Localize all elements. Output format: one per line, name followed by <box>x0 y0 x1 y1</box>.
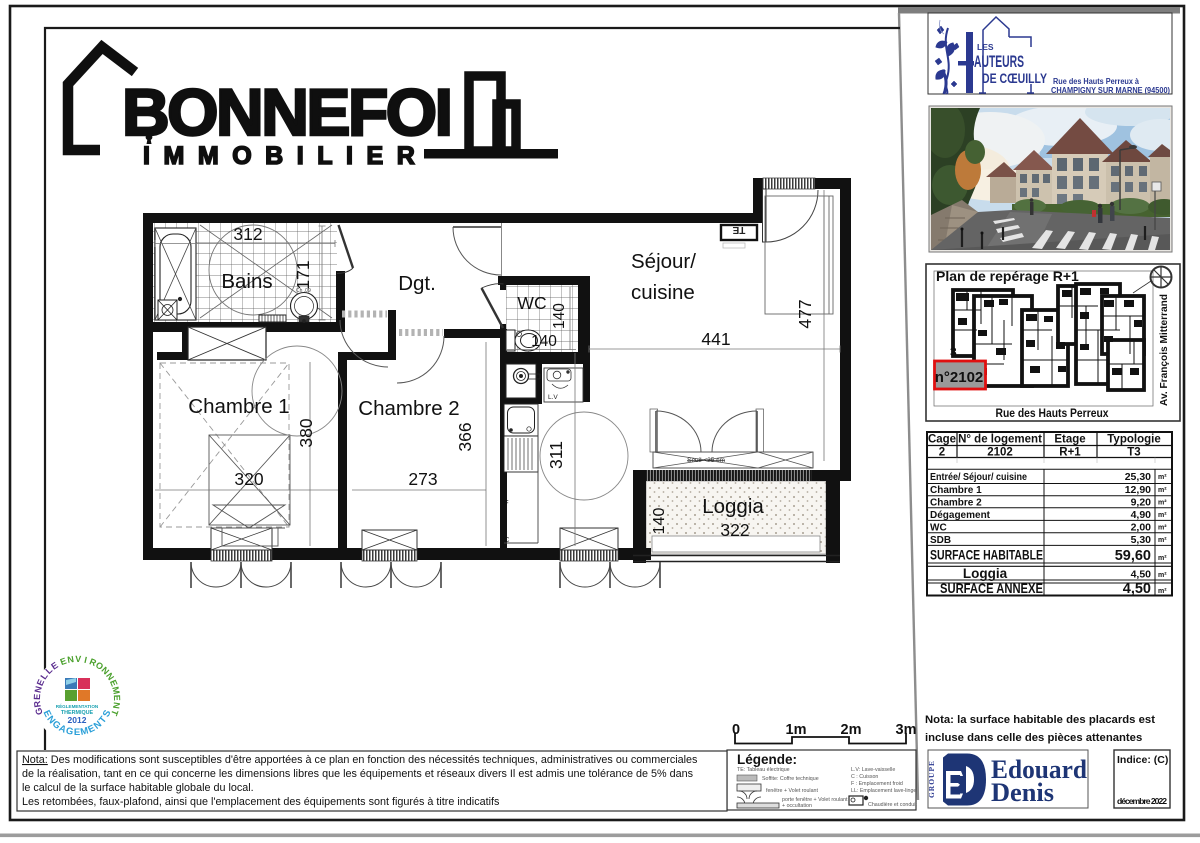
svg-text:12,90: 12,90 <box>1125 484 1151 496</box>
svg-text:4,50: 4,50 <box>1131 569 1152 581</box>
svg-text:Les retombées, faux-plafond, a: Les retombées, faux-plafond, ainsi que l… <box>22 796 500 808</box>
svg-text:SURFACE HABITABLE: SURFACE HABITABLE <box>930 548 1043 563</box>
svg-text:Entrée/ Séjour/ cuisine: Entrée/ Séjour/ cuisine <box>930 472 1027 483</box>
svg-text:9,20: 9,20 <box>1131 497 1152 509</box>
svg-text:Chambre 1: Chambre 1 <box>930 485 982 496</box>
svg-text:m²: m² <box>1158 588 1167 595</box>
svg-text:4,90: 4,90 <box>1131 509 1152 521</box>
svg-text:m²: m² <box>1158 512 1167 519</box>
svg-text:4,50: 4,50 <box>1123 581 1151 597</box>
svg-text:Cage: Cage <box>928 434 956 446</box>
svg-text:Typologie: Typologie <box>1107 434 1160 446</box>
svg-text:Nota: Des modifications sont s: Nota: Des modifications sont susceptible… <box>22 754 698 766</box>
svg-text:N° de logement: N° de logement <box>958 434 1042 446</box>
svg-text:T3: T3 <box>1127 447 1140 459</box>
svg-text:2: 2 <box>939 447 945 459</box>
svg-text:25,30: 25,30 <box>1125 471 1151 483</box>
svg-text:le calcul de la surface habita: le calcul de la surface habitable global… <box>22 782 254 794</box>
svg-text:2,00: 2,00 <box>1131 521 1152 533</box>
svg-text:m²: m² <box>1158 524 1167 531</box>
svg-text:5,30: 5,30 <box>1131 534 1152 546</box>
svg-text:Dégagement: Dégagement <box>930 510 991 521</box>
svg-text:59,60: 59,60 <box>1115 548 1151 564</box>
svg-text:m²: m² <box>1158 537 1167 544</box>
svg-text:m²: m² <box>1158 474 1167 481</box>
svg-text:de la réalisation, tant en ce: de la réalisation, tant en ce qui concer… <box>22 768 694 780</box>
svg-text:m²: m² <box>1158 487 1167 494</box>
svg-text:SURFACE ANNEXE: SURFACE ANNEXE <box>940 581 1043 596</box>
svg-text:2102: 2102 <box>987 447 1013 459</box>
svg-text:m²: m² <box>1158 500 1167 507</box>
svg-text:WC: WC <box>930 522 947 533</box>
svg-text:SDB: SDB <box>930 535 951 546</box>
svg-text:R+1: R+1 <box>1059 447 1081 459</box>
svg-text:m²: m² <box>1158 555 1167 562</box>
svg-text:Chambre 2: Chambre 2 <box>930 498 982 509</box>
svg-text:Loggia: Loggia <box>963 566 1008 581</box>
svg-text:m²: m² <box>1158 572 1167 579</box>
svg-text:Etage: Etage <box>1054 434 1085 446</box>
